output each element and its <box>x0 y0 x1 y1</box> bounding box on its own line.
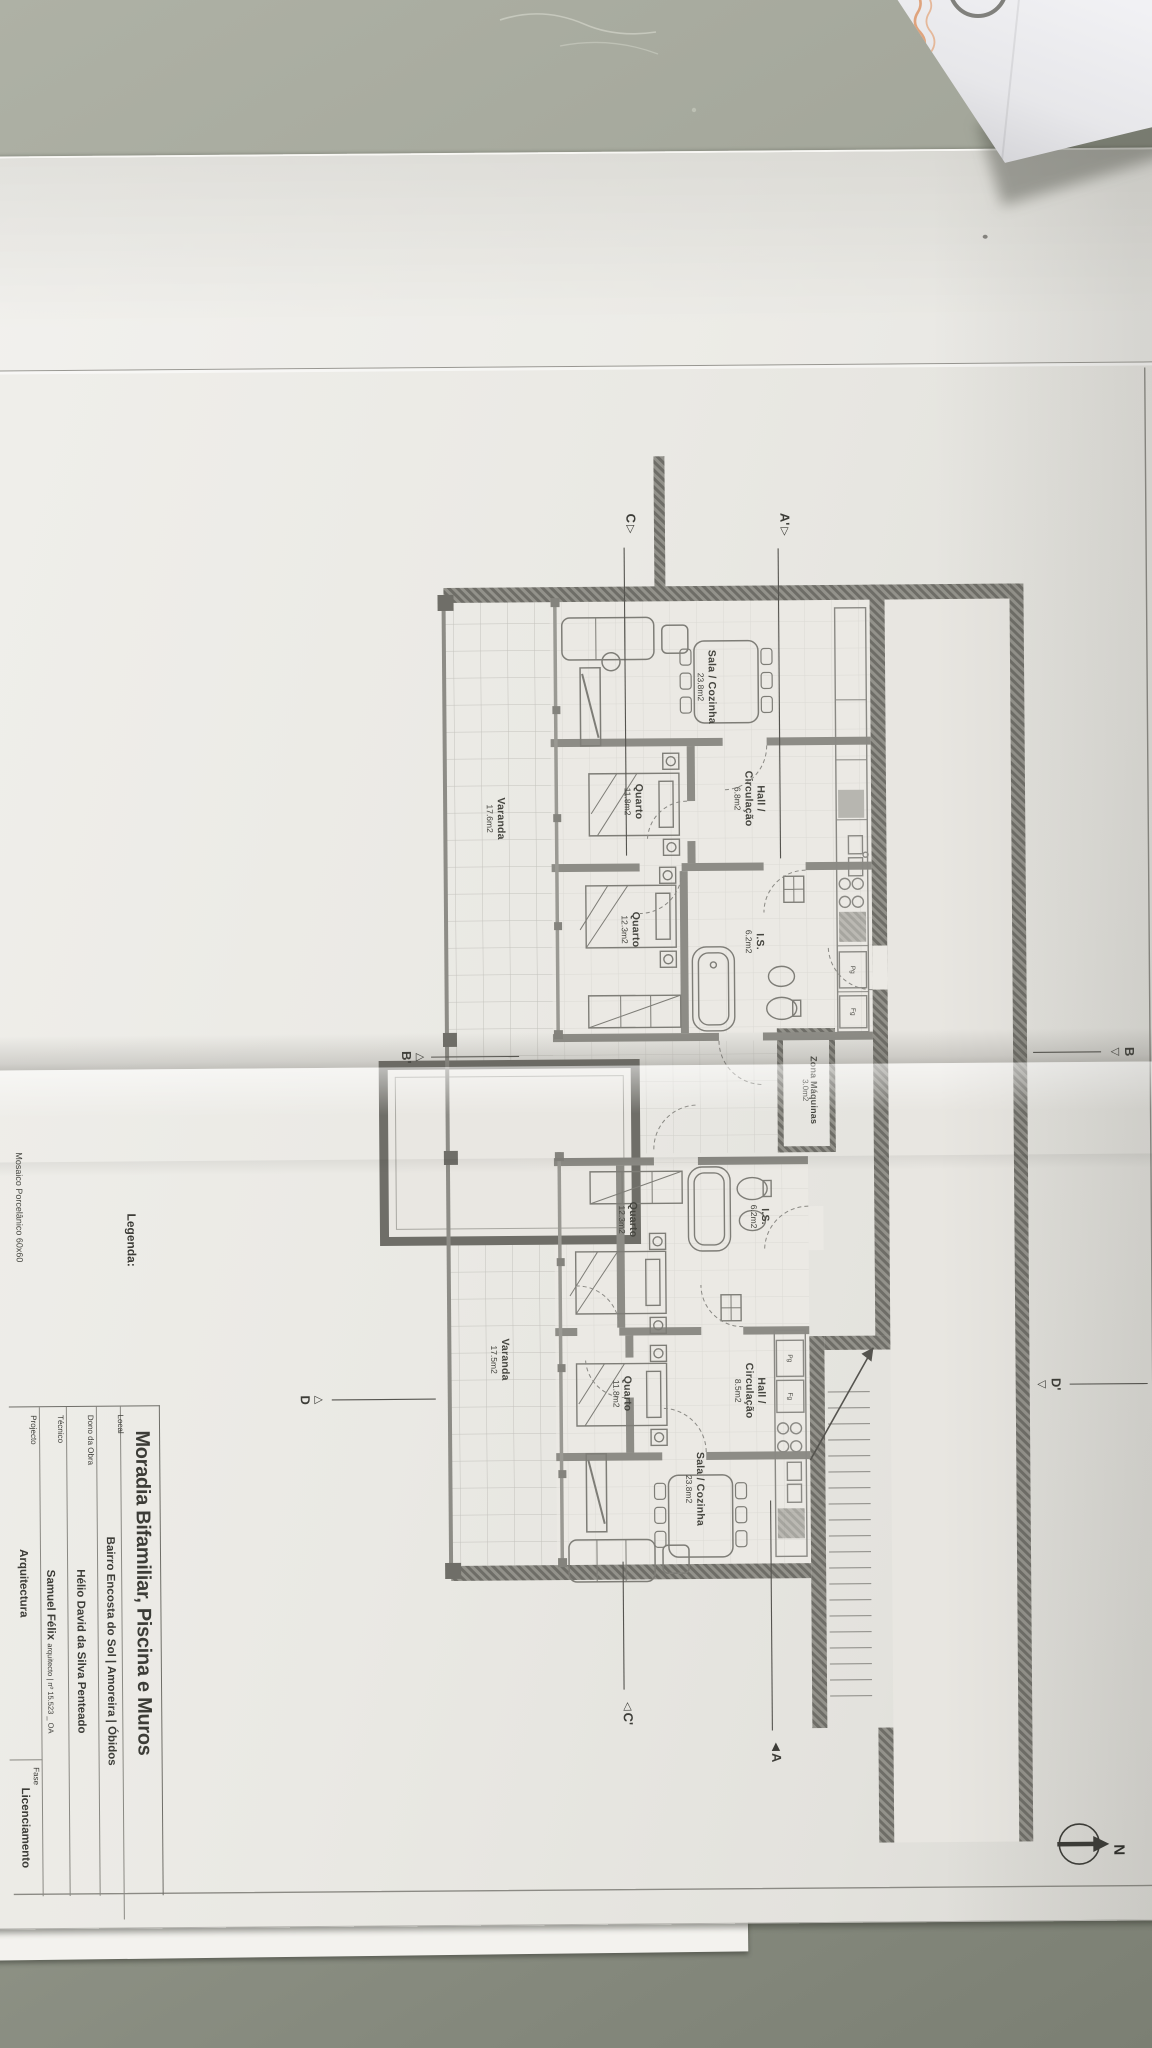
photo-of-floorplan: Sala / Cozinha 23.8m2 Hall / Circulação … <box>0 0 1152 2048</box>
dono-value: Hélio David da Silva Penteado <box>73 1407 89 1896</box>
fase-cell: Fase Licenciamento <box>10 1759 44 1896</box>
tecnico-label: Técnico <box>56 1415 65 1443</box>
titleblock-row-dono: Dono da Obra Hélio David da Silva Pentea… <box>66 1407 101 1896</box>
legend-heading: Legenda: <box>124 1213 138 1266</box>
room-label-hall-unit2: Hall / Circulação 8.5m2 <box>733 1363 766 1419</box>
appliance-label-pantry-unit2: Pg <box>786 1354 793 1362</box>
room-label-sala-unit2: Sala / Cozinha 23.8m2 <box>684 1452 706 1526</box>
section-arrow-icon: △ <box>313 1396 326 1405</box>
section-marker-d-prime: D'▽ <box>1036 1378 1064 1391</box>
section-arrow-icon: ▷ <box>778 527 791 536</box>
fase-value: Licenciamento <box>19 1759 32 1896</box>
fase-label: Fase <box>32 1767 41 1785</box>
room-label-quarto1-unit1: Quarto 11.8m2 <box>622 784 644 820</box>
projecto-label: Projecto <box>29 1415 38 1444</box>
room-label-quarto1-unit2: Quarto 11.8m2 <box>611 1376 633 1412</box>
titleblock-row-projecto-fase: Projecto Arquitectura Fase Licenciamento <box>7 1407 44 1896</box>
room-label-hall-unit1: Hall / Circulação 6.8m2 <box>732 771 765 827</box>
tecnico-value: Samuel Félix arquitecto | nº 15.523 _ OA <box>43 1407 59 1896</box>
section-marker-c-prime: ◁C' <box>621 1702 636 1725</box>
room-label-varanda-unit2: Varanda 17.5m2 <box>489 1338 511 1380</box>
fold-crease-highlight <box>0 1061 1152 1118</box>
section-arrow-icon: ◀ <box>770 1742 783 1751</box>
title-block: Moradia Bifamiliar, Piscina e Muros Loca… <box>9 1405 164 1896</box>
section-marker-c: C▷ <box>623 514 638 534</box>
section-marker-a-prime: A'▷ <box>777 513 792 536</box>
local-value: Bairro Encosta do Sol | Amoreira | Óbido… <box>103 1407 119 1896</box>
projecto-value: Arquitectura <box>16 1407 31 1759</box>
drawing-sheet: Sala / Cozinha 23.8m2 Hall / Circulação … <box>0 147 1152 1929</box>
section-marker-a: ◀A <box>769 1742 784 1762</box>
room-label-varanda-unit1: Varanda 17.6m2 <box>484 797 506 839</box>
room-label-sala-unit1: Sala / Cozinha 23.8m2 <box>695 650 717 724</box>
appliance-label-pantry-unit1: Pg <box>849 966 856 974</box>
room-label-quarto2-unit1: Quarto 12.3m2 <box>619 912 641 948</box>
section-arrow-icon: ◁ <box>622 1702 635 1711</box>
room-label-is-unit1: I.S. 6.2m2 <box>743 930 764 954</box>
section-marker-d: △D <box>298 1395 326 1405</box>
paper-smudge <box>983 235 988 239</box>
floor-plan-graphics <box>0 0 1152 2048</box>
room-label-is-unit2: I.S. 6.2m2 <box>749 1205 770 1229</box>
section-arrow-icon: ▽ <box>1036 1380 1049 1389</box>
north-label: N <box>1110 1820 1127 1880</box>
projecto-cell: Projecto Arquitectura <box>7 1407 43 1760</box>
north-arrow-icon: N <box>1110 1820 1127 1880</box>
titleblock-row-local: Local Bairro Encosta do Sol | Amoreira |… <box>96 1407 131 1896</box>
titleblock-row-tecnico: Técnico Samuel Félix arquitecto | nº 15.… <box>39 1407 71 1896</box>
tecnico-suffix: arquitecto | nº 15.523 _ OA <box>46 1643 56 1733</box>
section-arrow-icon: ▷ <box>624 525 637 534</box>
local-label: Local <box>116 1415 125 1434</box>
room-label-quarto2-unit2: Quarto 12.3m2 <box>617 1202 639 1238</box>
appliance-label-fridge-unit2: Fg <box>786 1392 793 1400</box>
dono-label: Dono da Obra <box>86 1415 95 1465</box>
architectural-drawing: Sala / Cozinha 23.8m2 Hall / Circulação … <box>0 0 1152 2048</box>
appliance-label-fridge-unit1: Fg <box>849 1008 856 1016</box>
